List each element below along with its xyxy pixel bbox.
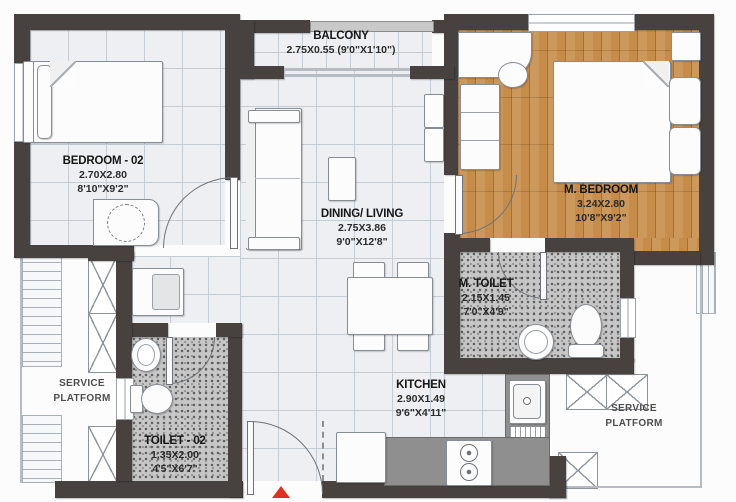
coffee-table-icon	[328, 157, 356, 201]
wall-segment	[458, 14, 528, 30]
door-leaf	[230, 177, 238, 249]
toilet-wc-base	[568, 344, 604, 358]
wall-segment	[699, 14, 714, 265]
service-right-bottom-edge	[548, 486, 702, 488]
refrigerator-space	[336, 432, 386, 483]
sofa-armrest	[248, 237, 300, 250]
sliding-door-rail	[284, 74, 410, 77]
wardrobe-icon	[460, 84, 500, 170]
blanket-fold	[643, 61, 669, 87]
room-label-master-bedroom: M. BEDROOM 3.24X2.80 10'8"X9'2"	[564, 183, 638, 225]
label-service-platform-right: SERVICE PLATFORM	[605, 402, 662, 431]
wall-segment	[240, 66, 284, 79]
floor-plan: BALCONY 2.75X0.55 (9'0"X1'10") BEDROOM -…	[0, 0, 736, 502]
tv-unit-icon	[424, 94, 444, 128]
stool-icon	[498, 62, 528, 88]
dining-chair-icon	[397, 333, 429, 351]
wall-segment	[14, 14, 240, 30]
burner-icon	[460, 444, 478, 462]
wall-segment	[444, 358, 634, 374]
wall-segment	[88, 251, 134, 261]
burner-icon	[460, 463, 478, 481]
sofa-armrest	[248, 110, 300, 123]
service-left-platform-hatch	[22, 253, 62, 367]
door-leaf	[166, 337, 173, 385]
dining-table-icon	[347, 277, 433, 335]
wall-segment	[458, 238, 490, 252]
wall-segment	[620, 252, 634, 298]
door-leaf	[247, 421, 254, 495]
wall-segment	[225, 30, 240, 180]
wall-segment	[444, 14, 458, 175]
duct-x-icon	[88, 426, 118, 483]
service-right-edge	[700, 265, 702, 486]
tv-unit-icon	[424, 128, 444, 162]
side-table-icon	[671, 32, 701, 61]
wall-segment	[116, 251, 132, 378]
duct-x-icon	[88, 255, 118, 315]
toilet-wc-icon	[570, 304, 602, 348]
wall-segment	[228, 323, 242, 497]
duct-x-icon	[566, 374, 608, 410]
washbasin-bowl	[524, 330, 548, 354]
sink-drain	[523, 397, 531, 405]
window	[528, 14, 635, 32]
wall-segment	[14, 30, 30, 63]
wall-segment	[14, 140, 30, 256]
sliding-door-rail	[284, 68, 410, 71]
wall-segment	[55, 481, 243, 498]
door-leaf	[455, 175, 463, 235]
wall-segment	[116, 418, 132, 481]
room-label-toilet2: TOILET - 02 1.35X2.00 4'5"X6'7"	[144, 434, 206, 476]
room-label-dining-living: DINING/ LIVING 2.75X3.86 9'0"X12'8"	[321, 207, 403, 249]
sofa-cushion-divider	[255, 178, 300, 179]
entry-arrow-icon	[272, 486, 290, 498]
wall-segment	[216, 323, 242, 337]
pillow-icon	[669, 127, 701, 175]
wall-segment	[410, 66, 454, 79]
service-left-platform-hatch-2	[22, 415, 62, 483]
wall-segment	[634, 251, 700, 265]
washbasin-bowl	[137, 344, 155, 366]
pillow-icon	[669, 77, 701, 125]
kitchen-boundary-dashed	[322, 421, 324, 481]
toilet-wc-icon	[141, 384, 173, 414]
duct-x-icon	[88, 313, 118, 373]
wash-counter-basin	[152, 274, 180, 310]
wall-segment	[545, 238, 634, 252]
room-label-master-toilet: M. TOILET 2.15X1.45 7'0"X4'9"	[459, 277, 514, 319]
door-leaf	[540, 252, 547, 300]
wall-segment	[633, 14, 699, 30]
window	[620, 298, 636, 338]
dining-chair-icon	[353, 333, 385, 351]
blanket-fold	[50, 61, 76, 87]
room-label-kitchen: KITCHEN 2.90X1.49 9'6"X4'11"	[396, 378, 447, 420]
room-label-balcony: BALCONY 2.75X0.55 (9'0"X1'10")	[287, 29, 396, 58]
label-service-platform-left: SERVICE PLATFORM	[53, 377, 110, 406]
room-label-bedroom2: BEDROOM - 02 2.70X2.80 8'10"X9'2"	[63, 154, 144, 196]
chair-icon	[107, 204, 145, 242]
